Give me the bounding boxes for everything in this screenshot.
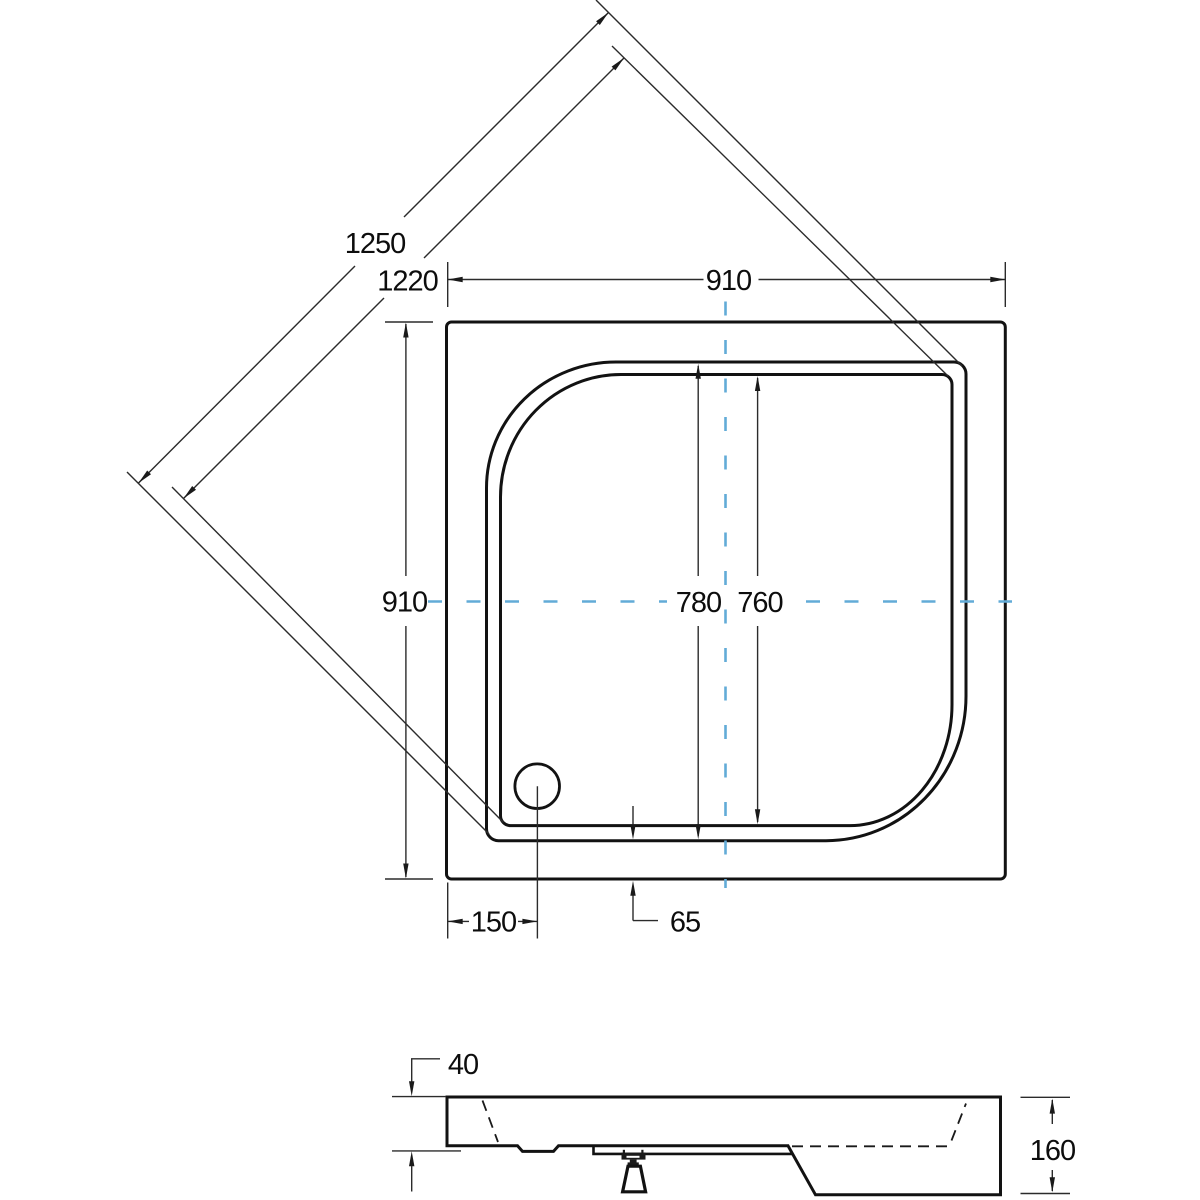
svg-text:160: 160 [1030,1135,1075,1167]
svg-text:1250: 1250 [345,228,406,260]
svg-text:910: 910 [382,586,427,618]
svg-text:760: 760 [737,587,782,619]
svg-text:780: 780 [676,587,721,619]
svg-text:1220: 1220 [377,266,438,298]
svg-text:65: 65 [670,907,700,939]
svg-text:150: 150 [471,907,516,939]
svg-text:40: 40 [448,1049,478,1081]
svg-text:910: 910 [706,265,751,297]
